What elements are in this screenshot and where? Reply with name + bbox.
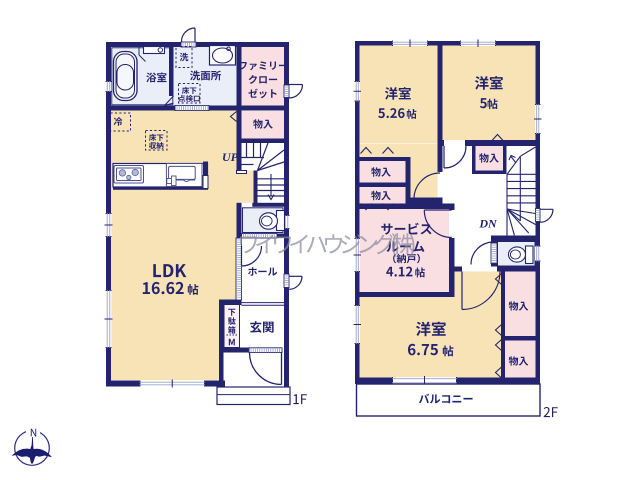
svg-text:DN: DN (478, 217, 498, 231)
svg-text:UP: UP (222, 150, 239, 164)
